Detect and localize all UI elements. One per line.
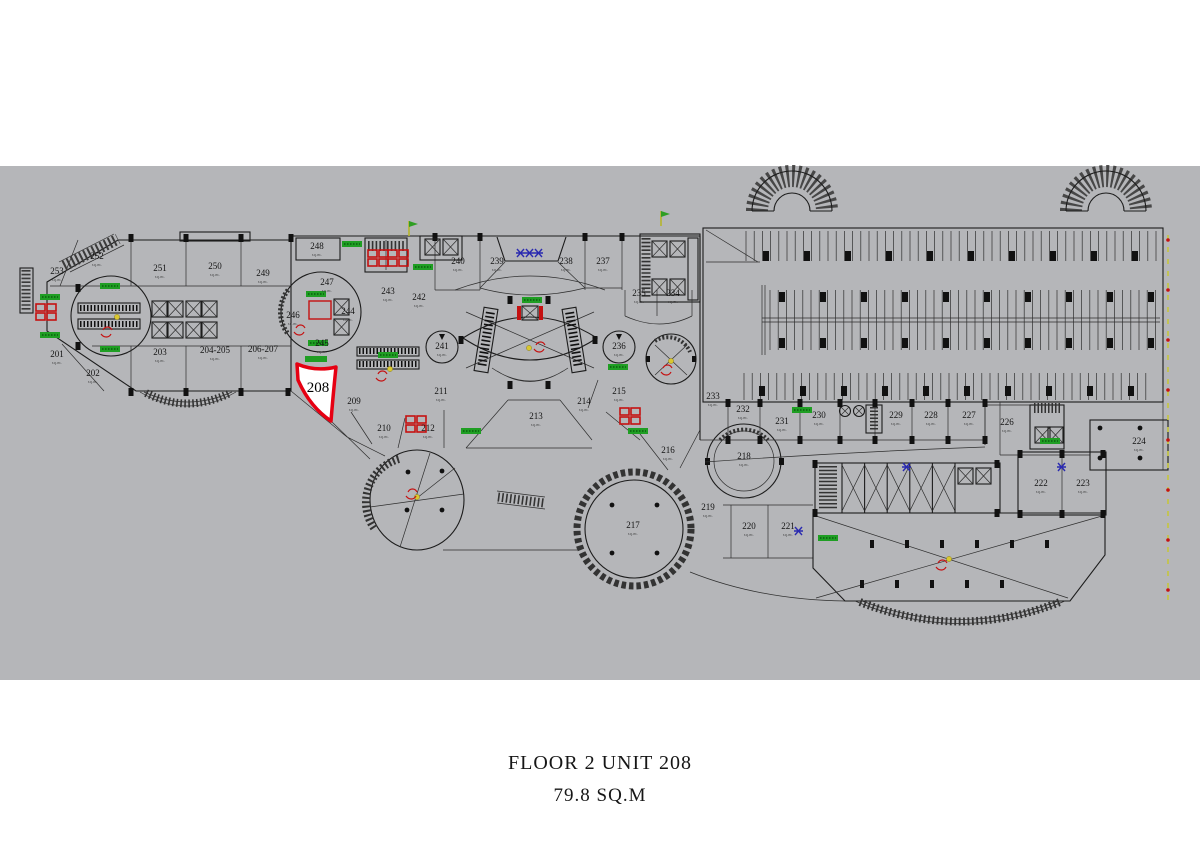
unit-label-248: 248 [310, 241, 324, 251]
floor-plan-page: 201sq.m.202sq.m.203sq.m.204-205sq.m.206-… [0, 0, 1200, 848]
unit-label-222: 222 [1034, 478, 1048, 488]
colonnade-right [855, 601, 1065, 624]
door-jamb [1060, 450, 1065, 458]
door-jamb [546, 296, 551, 304]
unit-area-215: sq.m. [614, 397, 624, 402]
unit-label-208: 208 [307, 380, 330, 396]
floor-plan-svg: 201sq.m.202sq.m.203sq.m.204-205sq.m.206-… [0, 0, 1200, 848]
unit-label-236: 236 [612, 341, 626, 351]
boundary-dot-icon [1166, 238, 1170, 242]
bridge-mark-icon [525, 249, 534, 257]
escalator-tag-icon [305, 356, 327, 362]
unit-label-211: 211 [434, 386, 447, 396]
unit-label-251: 251 [153, 263, 167, 273]
column-icon [968, 251, 974, 261]
door-jamb [508, 296, 513, 304]
wc-icon [36, 304, 45, 311]
unit-area-226: sq.m. [1002, 428, 1012, 433]
unit-area-240: sq.m. [453, 267, 463, 272]
door-jamb [1018, 450, 1023, 458]
wc-icon [406, 416, 415, 423]
boundary-dot-icon [1166, 538, 1170, 542]
wc-icon [36, 313, 45, 320]
door-jamb [546, 381, 551, 389]
unit-area-211: sq.m. [436, 397, 446, 402]
wc-icon [379, 259, 388, 266]
door-jamb [76, 342, 81, 350]
wc-icon [309, 301, 331, 319]
bridge-mark-icon [794, 527, 803, 535]
elevator-icon [517, 306, 543, 320]
unit-area-227: sq.m. [964, 421, 974, 426]
unit-label-231: 231 [775, 416, 789, 426]
left-wing [20, 232, 291, 406]
unit-label-232: 232 [736, 404, 750, 414]
unit-area-214: sq.m. [579, 407, 589, 412]
unit-label-249: 249 [256, 268, 270, 278]
door-jamb [184, 234, 189, 242]
unit-label-227: 227 [962, 410, 976, 420]
unit-area-249: sq.m. [258, 279, 268, 284]
unit-label-221: 221 [781, 521, 795, 531]
column-icon [1091, 251, 1097, 261]
flow-arrow-icon [294, 325, 305, 335]
unit-label-219: 219 [701, 502, 715, 512]
unit-area-248: sq.m. [312, 252, 322, 257]
ramp-icon [1066, 171, 1146, 211]
unit-label-201: 201 [50, 349, 64, 359]
marker-dot-icon [114, 314, 119, 319]
door-jamb [286, 388, 291, 396]
unit-label-224: 224 [1132, 436, 1146, 446]
unit-label-243: 243 [381, 286, 395, 296]
unit-area-239: sq.m. [492, 267, 502, 272]
unit-area-218: sq.m. [739, 462, 749, 467]
unit-area-250: sq.m. [210, 272, 220, 277]
unit-label-204-205: 204-205 [200, 345, 230, 355]
unit-label-228: 228 [924, 410, 938, 420]
unit-area-216: sq.m. [663, 456, 673, 461]
caption-area: 79.8 SQ.M [0, 785, 1200, 807]
door-jamb [995, 509, 1000, 517]
unit-area-251: sq.m. [155, 274, 165, 279]
unit-area-253: sq.m. [52, 277, 62, 282]
unit-area-222: sq.m. [1036, 489, 1046, 494]
unit-area-238: sq.m. [561, 267, 571, 272]
door-jamb [838, 436, 843, 444]
bridge-mark-icon [516, 249, 525, 257]
boundary-dot-icon [1166, 438, 1170, 442]
unit-area-235: sq.m. [634, 299, 644, 304]
bridge-mark-icon [902, 463, 911, 471]
unit-area-232: sq.m. [738, 415, 748, 420]
wc-icon [417, 416, 426, 423]
wc-icon [631, 417, 640, 424]
unit-area-217: sq.m. [628, 531, 638, 536]
unit-label-209: 209 [347, 396, 361, 406]
door-jamb [798, 436, 803, 444]
unit-area-220: sq.m. [744, 532, 754, 537]
unit-area-204-205: sq.m. [210, 356, 220, 361]
colonnade-mid [497, 491, 545, 509]
wc-icon [368, 250, 377, 257]
unit-area-224: sq.m. [1134, 447, 1144, 452]
door-jamb [798, 399, 803, 407]
door-jamb [946, 399, 951, 407]
flow-arrow-icon [661, 365, 672, 375]
door-jamb [838, 399, 843, 407]
unit-area-237: sq.m. [598, 267, 608, 272]
column-icon [886, 251, 892, 261]
column-icon [1132, 251, 1138, 261]
door-jamb [239, 388, 244, 396]
escalator-icon [78, 303, 140, 329]
column-icon [845, 251, 851, 261]
unit-label-230: 230 [812, 410, 826, 420]
unit-area-206-207: sq.m. [258, 355, 268, 360]
unit-area-229: sq.m. [891, 421, 901, 426]
wc-icon [406, 425, 415, 432]
door-jamb [478, 233, 483, 241]
door-jamb [758, 399, 763, 407]
unit-area-236: sq.m. [614, 352, 624, 357]
unit-label-233: 233 [706, 391, 720, 401]
boundary-dot-icon [1166, 388, 1170, 392]
column-icon [927, 251, 933, 261]
unit-label-253: 253 [50, 266, 64, 276]
unit-area-201: sq.m. [52, 360, 62, 365]
unit-label-252: 252 [90, 251, 104, 261]
unit-label-210: 210 [377, 423, 391, 433]
door-jamb [873, 436, 878, 444]
unit-area-202: sq.m. [88, 379, 98, 384]
flow-arrow-icon [534, 342, 545, 352]
wc-icon [368, 259, 377, 266]
wc-icon [47, 304, 56, 311]
unit-label-229: 229 [889, 410, 903, 420]
door-jamb [910, 399, 915, 407]
door-jamb [910, 436, 915, 444]
unit-area-234: sq.m. [668, 299, 678, 304]
unit-area-245: sq.m. [317, 349, 327, 354]
flow-arrow-icon [376, 371, 387, 381]
unit-area-241: sq.m. [437, 352, 447, 357]
wc-icon [620, 408, 629, 415]
unit-label-246: 246 [286, 310, 300, 320]
unit-label-226: 226 [1000, 417, 1014, 427]
door-jamb [129, 234, 134, 242]
door-jamb [620, 233, 625, 241]
door-jamb [129, 388, 134, 396]
unit-label-240: 240 [451, 256, 465, 266]
unit-label-212: 212 [421, 423, 435, 433]
door-jamb [726, 436, 731, 444]
door-jamb [1101, 450, 1106, 458]
caption-title: FLOOR 2 UNIT 208 [0, 752, 1200, 775]
bridge-mark-icon [1057, 463, 1066, 471]
column-icon [804, 251, 810, 261]
wc-icon [379, 250, 388, 257]
door-jamb [593, 336, 598, 344]
boundary-dot-icon [1166, 488, 1170, 492]
door-jamb [813, 509, 818, 517]
unit-label-202: 202 [86, 368, 100, 378]
unit-label-235: 235 [632, 288, 646, 298]
boundary-dot-icon [1166, 338, 1170, 342]
door-jamb [758, 436, 763, 444]
unit-area-243: sq.m. [383, 297, 393, 302]
wc-icon [620, 417, 629, 424]
unit-area-210: sq.m. [379, 434, 389, 439]
door-jamb [289, 234, 294, 242]
column-icon [1009, 251, 1015, 261]
door-jamb [239, 234, 244, 242]
door-jamb [726, 399, 731, 407]
door-jamb [995, 460, 1000, 468]
unit-area-213: sq.m. [531, 422, 541, 427]
unit-area-221: sq.m. [783, 532, 793, 537]
flow-arrow-icon [406, 489, 417, 499]
door-jamb [76, 284, 81, 292]
unit-label-239: 239 [490, 256, 504, 266]
unit-label-218: 218 [737, 451, 751, 461]
door-jamb [983, 436, 988, 444]
door-jamb [946, 436, 951, 444]
marker-dot-icon [946, 556, 951, 561]
marker-dot-icon [526, 345, 531, 350]
column-icon [763, 251, 769, 261]
unit-area-228: sq.m. [926, 421, 936, 426]
marker-dot-icon [668, 358, 673, 363]
unit-area-219: sq.m. [703, 513, 713, 518]
bridge-mark-icon [534, 249, 543, 257]
flow-arrow-icon [936, 560, 947, 570]
unit-area-230: sq.m. [814, 421, 824, 426]
unit-label-250: 250 [208, 261, 222, 271]
unit-area-203: sq.m. [155, 358, 165, 363]
unit-area-242: sq.m. [414, 303, 424, 308]
wc-icon [388, 250, 397, 257]
unit-area-246: sq.m. [288, 321, 298, 326]
marker-dot-icon [387, 366, 392, 371]
unit-label-214: 214 [577, 396, 591, 406]
unit-label-215: 215 [612, 386, 626, 396]
unit-label-206-207: 206-207 [248, 344, 278, 354]
unit-label-241: 241 [435, 341, 449, 351]
boundary-dot-icon [1166, 288, 1170, 292]
corridor-web [291, 380, 845, 601]
unit-area-252: sq.m. [92, 262, 102, 267]
elevator-icon [840, 405, 883, 433]
door-jamb [873, 399, 878, 407]
unit-area-244: sq.m. [343, 317, 353, 322]
stair-icon [365, 238, 407, 272]
unit-area-247: sq.m. [322, 288, 332, 293]
door-jamb [1018, 510, 1023, 518]
door-jamb [459, 336, 464, 344]
unit-label-216: 216 [661, 445, 675, 455]
door-jamb [1060, 510, 1065, 518]
central-atrium [455, 276, 605, 382]
unit-label-245: 245 [315, 338, 329, 348]
door-jamb [813, 460, 818, 468]
unit-label-237: 237 [596, 256, 610, 266]
boundary-dot-icon [1166, 588, 1170, 592]
door-jamb [583, 233, 588, 241]
door-jamb [433, 233, 438, 241]
column-icon [1050, 251, 1056, 261]
unit-label-217: 217 [626, 520, 640, 530]
unit-label-213: 213 [529, 411, 543, 421]
unit-area-233: sq.m. [708, 402, 718, 407]
unit-label-223: 223 [1076, 478, 1090, 488]
unit-area-223: sq.m. [1078, 489, 1088, 494]
door-jamb [184, 388, 189, 396]
unit-label-247: 247 [320, 277, 334, 287]
unit-label-203: 203 [153, 347, 167, 357]
door-jamb [983, 399, 988, 407]
unit-area-212: sq.m. [423, 434, 433, 439]
wc-icon [388, 259, 397, 266]
unit-label-244: 244 [341, 306, 355, 316]
unit-label-238: 238 [559, 256, 573, 266]
unit-area-209: sq.m. [349, 407, 359, 412]
unit-label-220: 220 [742, 521, 756, 531]
wc-icon [631, 408, 640, 415]
truss-hall [813, 463, 1105, 624]
wc-icon [47, 313, 56, 320]
unit-label-242: 242 [412, 292, 426, 302]
unit-area-231: sq.m. [777, 427, 787, 432]
court-circle [366, 450, 464, 550]
unit-label-234: 234 [666, 288, 680, 298]
ramp-icon [752, 171, 832, 211]
door-jamb [508, 381, 513, 389]
door-jamb [1101, 510, 1106, 518]
